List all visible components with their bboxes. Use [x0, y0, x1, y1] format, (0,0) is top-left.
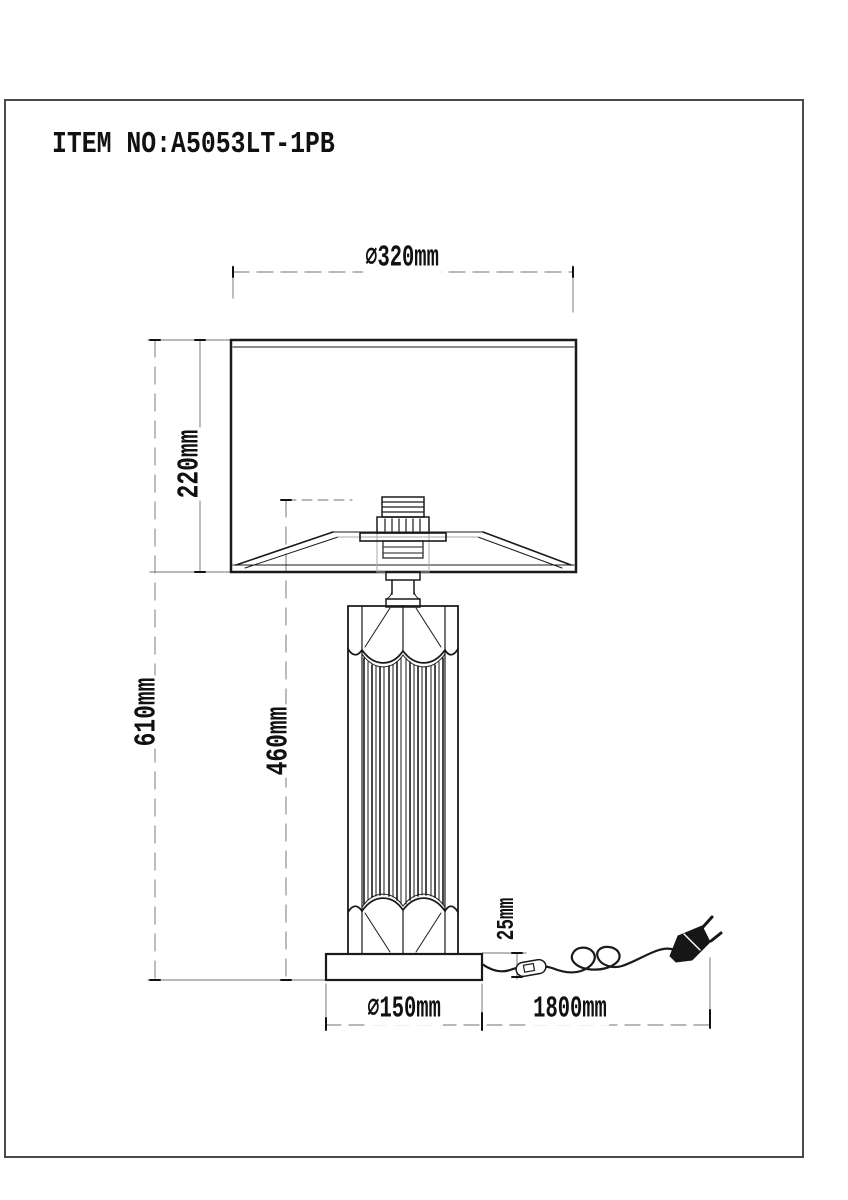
dim-shade-height: 220mm: [174, 427, 207, 500]
dim-base-height: 25mm: [495, 895, 521, 942]
lamp-shade: [231, 340, 576, 572]
dim-base-diameter: ⌀150mm: [365, 993, 443, 1026]
cord-switch: [515, 959, 547, 978]
power-plug: [670, 917, 721, 962]
dimension-lines: [148, 266, 710, 1028]
dim-total-height: 610mm: [131, 675, 164, 748]
dim-body-height: 460mm: [263, 704, 296, 777]
fluted-glass-body: [348, 649, 458, 912]
dim-shade-diameter: ⌀320mm: [363, 242, 441, 275]
lamp-base: [326, 954, 482, 980]
bulb-socket: [360, 497, 446, 572]
dimension-ticks: [150, 267, 710, 1030]
body-bottom-cap: [348, 894, 458, 954]
dim-cord-length: 1800mm: [531, 993, 609, 1026]
lamp-neck: [386, 572, 420, 607]
power-cord: [482, 947, 675, 973]
